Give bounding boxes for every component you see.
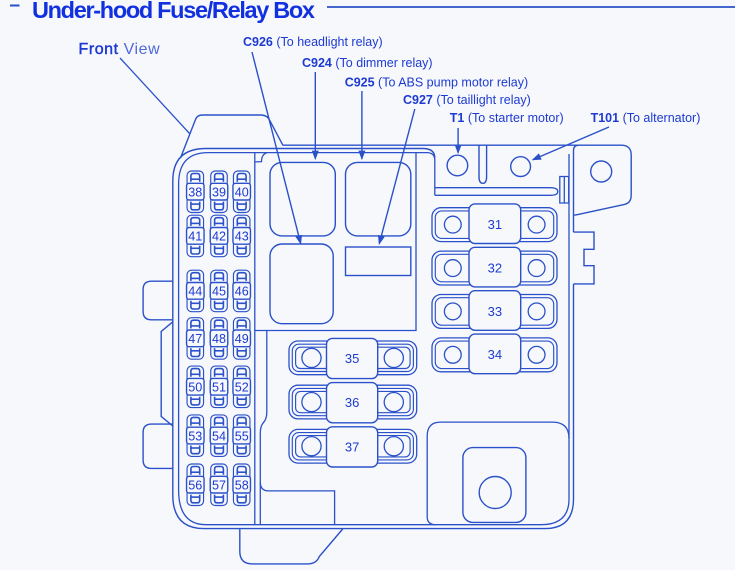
svg-text:Under-hood Fuse/Relay Box: Under-hood Fuse/Relay Box [32, 0, 315, 23]
svg-text:Front View: Front View [79, 41, 161, 58]
svg-text:43: 43 [235, 230, 249, 244]
svg-text:39: 39 [212, 186, 226, 200]
svg-text:46: 46 [235, 285, 249, 299]
svg-text:32: 32 [488, 260, 502, 275]
svg-text:52: 52 [235, 381, 249, 395]
svg-text:34: 34 [488, 347, 502, 362]
svg-text:37: 37 [345, 439, 359, 454]
svg-text:C924 (To dimmer relay): C924 (To dimmer relay) [302, 56, 433, 70]
svg-text:50: 50 [188, 381, 202, 395]
svg-text:C927 (To taillight relay): C927 (To taillight relay) [403, 93, 531, 107]
svg-text:58: 58 [235, 479, 249, 493]
svg-text:31: 31 [488, 217, 502, 232]
svg-text:38: 38 [188, 186, 202, 200]
svg-text:51: 51 [212, 381, 226, 395]
svg-text:T1 (To starter motor): T1 (To starter motor) [450, 111, 564, 125]
svg-text:53: 53 [188, 429, 202, 443]
svg-text:57: 57 [212, 479, 226, 493]
svg-text:56: 56 [188, 479, 202, 493]
svg-text:47: 47 [188, 332, 202, 346]
svg-text:45: 45 [212, 285, 226, 299]
svg-text:41: 41 [188, 230, 202, 244]
svg-text:C925 (To ABS pump motor relay): C925 (To ABS pump motor relay) [345, 76, 528, 90]
svg-text:54: 54 [212, 429, 226, 443]
svg-text:44: 44 [188, 285, 202, 299]
svg-text:55: 55 [235, 429, 249, 443]
svg-text:T101 (To alternator): T101 (To alternator) [591, 111, 701, 125]
svg-text:40: 40 [235, 186, 249, 200]
svg-text:36: 36 [345, 395, 359, 410]
svg-text:48: 48 [212, 332, 226, 346]
svg-text:C926 (To headlight relay): C926 (To headlight relay) [243, 35, 383, 49]
svg-text:42: 42 [212, 230, 226, 244]
svg-text:33: 33 [488, 304, 502, 319]
svg-text:49: 49 [235, 332, 249, 346]
svg-text:35: 35 [345, 351, 359, 366]
